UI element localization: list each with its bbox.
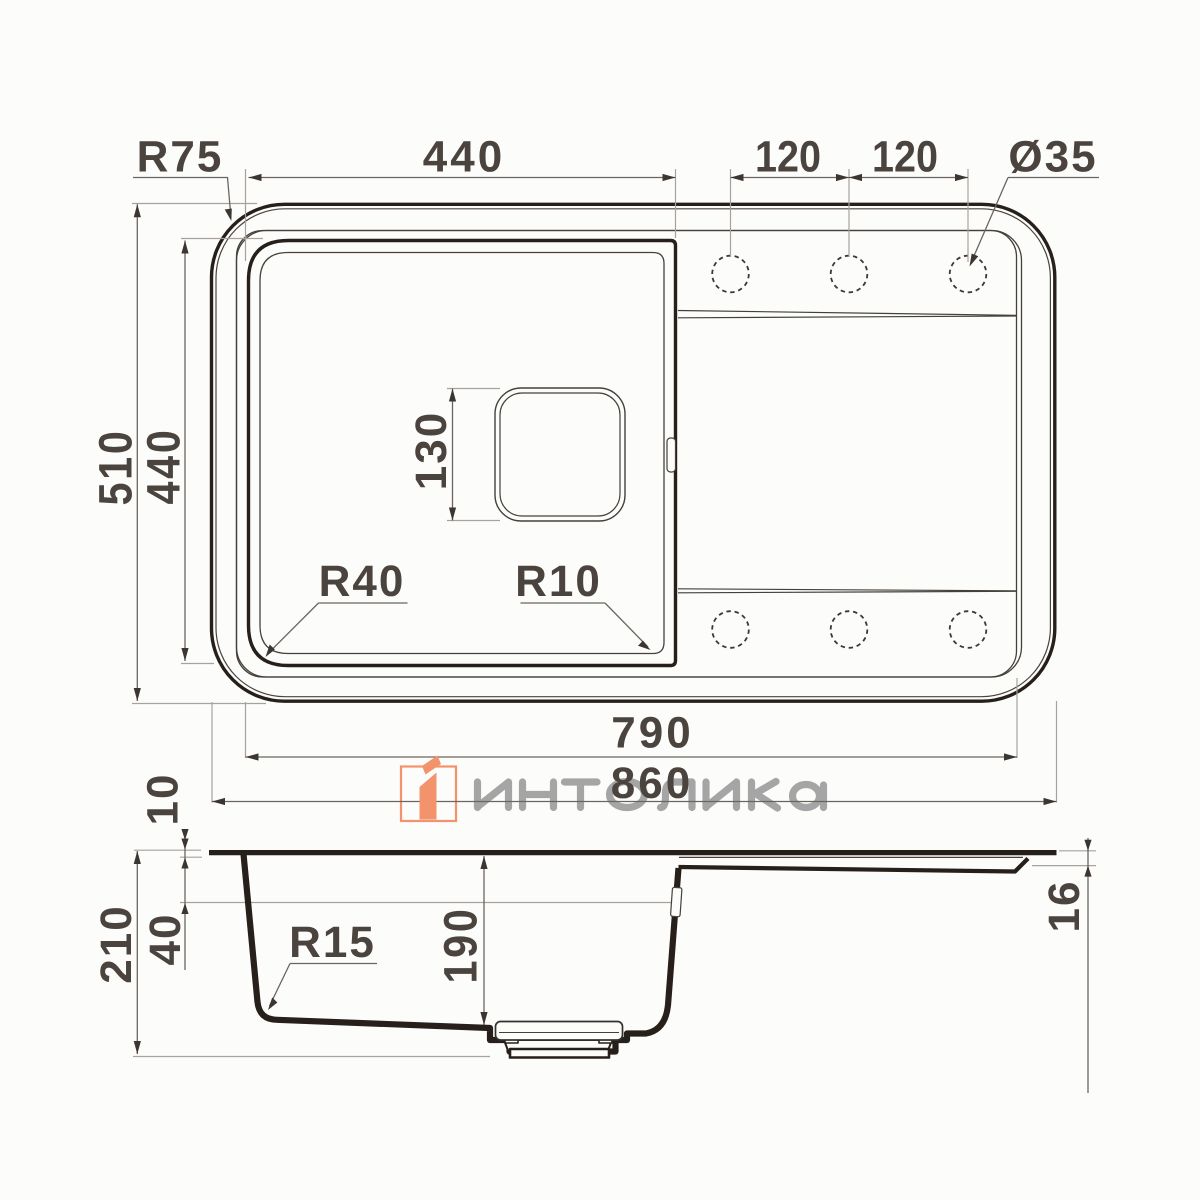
svg-text:Ø35: Ø35 xyxy=(1008,133,1097,182)
svg-text:510: 510 xyxy=(89,429,142,506)
svg-text:190: 190 xyxy=(434,907,487,984)
svg-text:120: 120 xyxy=(872,133,938,182)
svg-text:790: 790 xyxy=(611,709,693,758)
svg-text:R15: R15 xyxy=(289,918,376,967)
svg-text:R75: R75 xyxy=(137,133,224,182)
svg-text:10: 10 xyxy=(139,773,188,826)
svg-text:130: 130 xyxy=(407,411,456,490)
svg-text:440: 440 xyxy=(137,428,190,505)
svg-text:R40: R40 xyxy=(319,557,406,606)
svg-text:120: 120 xyxy=(755,133,821,182)
svg-text:860: 860 xyxy=(611,759,693,808)
svg-text:40: 40 xyxy=(141,913,190,966)
svg-text:210: 210 xyxy=(92,904,141,983)
svg-text:R10: R10 xyxy=(515,557,602,606)
svg-text:16: 16 xyxy=(1040,880,1089,933)
svg-text:440: 440 xyxy=(423,133,505,182)
